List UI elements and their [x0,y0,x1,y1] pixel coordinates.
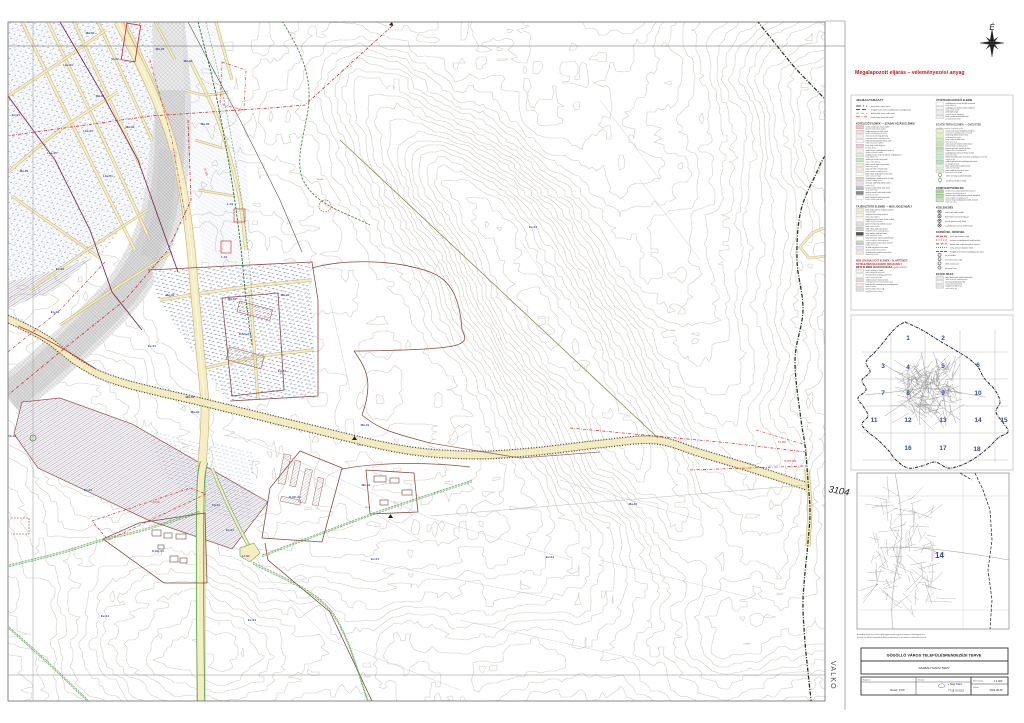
svg-text:védett jel erdő út erdő: védett jel erdő út erdő [946,179,967,182]
svg-text:tervezett zóna erdő: tervezett zóna erdő [945,258,963,261]
svg-text:meglévő övezeti szabályozási s: meglévő övezeti szabályozási szabályozás… [871,109,912,112]
svg-text:Tervező:: Tervező: [918,679,926,682]
svg-text:Lf-01: Lf-01 [242,554,250,558]
svg-text:Ev-01: Ev-01 [12,113,21,117]
svg-text:belterületi erdő övezeti terve: belterületi erdő övezeti tervezett [950,243,980,246]
svg-text:EGYÉB TERVI ELEMEK — ÖVEZETEK: EGYÉB TERVI ELEMEK — ÖVEZETEK [936,124,981,127]
svg-text:Ev-01: Ev-01 [84,488,93,492]
svg-text:Méretarány:: Méretarány: [973,680,984,683]
svg-text:Ev-01: Ev-01 [546,555,555,559]
svg-text:6: 6 [976,362,980,369]
svg-text:70.278 TRK: 70.278 TRK [784,460,797,463]
svg-text:VALKÓ: VALKÓ [829,661,838,690]
svg-text:7: 7 [881,390,885,397]
svg-text:1:4 000: 1:4 000 [994,679,1003,683]
svg-text:Ev-02: Ev-02 [56,267,65,271]
svg-text:övezeti szabályozási erdő terü: övezeti szabályozási erdő terület [950,239,981,242]
svg-text:szabályozási vonal védett hatá: szabályozási vonal védett határ [945,225,973,228]
svg-text:50.008: 50.008 [317,179,324,181]
svg-text:Má-02: Má-02 [126,125,135,129]
svg-text:K-Rö-01: K-Rö-01 [289,495,301,499]
svg-text:Má-01: Má-01 [362,483,371,487]
svg-text:Ev-01: Ev-01 [148,344,157,348]
svg-text:L-01: L-01 [221,255,228,259]
svg-text:2: 2 [941,335,945,342]
svg-text:telek jel övezeti helyi: telek jel övezeti helyi [950,235,970,238]
svg-text:Ev-01: Ev-01 [101,614,110,618]
svg-text:47.29: 47.29 [153,500,160,504]
svg-text:Má-02: Má-02 [191,410,200,414]
svg-text:hely telek vonal zóna: hely telek vonal zóna [871,105,891,108]
svg-text:K-Rg-01: K-Rg-01 [152,549,164,553]
svg-text:zöld erdő erdő védett: zöld erdő erdő védett [945,211,964,214]
svg-text:9: 9 [941,390,945,397]
svg-text:Vt-02: Vt-02 [111,57,119,61]
svg-text:Má-01: Má-01 [629,502,638,506]
svg-text:Eg-01: Eg-01 [51,310,60,314]
svg-text:4: 4 [906,364,910,371]
svg-text:MÉTA ELEMEK FELDOLGOZÁSA egyéb: MÉTA ELEMEK FELDOLGOZÁSA egyéb jelkulcs [856,266,908,269]
svg-text:Lke-01: Lke-01 [103,174,113,178]
svg-text:67.346: 67.346 [778,441,786,444]
svg-text:ÁTVÉTELRE KERÜLŐ ELEMEI: ÁTVÉTELRE KERÜLŐ ELEMEI [936,99,972,102]
svg-text:Megbízó:: Megbízó: [863,680,871,682]
svg-text:14: 14 [935,551,944,560]
svg-text:TT/1É 01-5022: TT/1É 01-5022 [948,690,965,693]
svg-text:EGYÉB JELEK: EGYÉB JELEK [936,273,954,276]
svg-text:Má-01: Má-01 [20,169,29,173]
svg-text:Lke-05: Lke-05 [47,151,57,155]
svg-text:zóna határ jel: zóna határ jel [946,287,958,290]
svg-text:15: 15 [1000,417,1008,424]
svg-text:telek út helyi zöld belterület: telek út helyi zöld belterületi [946,174,972,177]
svg-text:határ hely tervezett erdő: határ hely tervezett erdő [871,116,894,119]
svg-text:telek zóna határ: telek zóna határ [945,263,960,266]
svg-text:KÖTELEZŐEN MAGASABB JOGSZABÁLY: KÖTELEZŐEN MAGASABB JOGSZABÁLY [856,263,902,266]
svg-text:35 kV: 35 kV [365,507,371,509]
svg-text:Dátum:: Dátum: [973,686,980,689]
svg-text:belterületi zóna erdő telek: belterületi zóna erdő telek [871,112,896,115]
svg-text:14: 14 [974,417,982,424]
svg-text:Ak-02: Ak-02 [8,434,17,438]
svg-text:♦ Nagy Klára: ♦ Nagy Klára [948,683,962,686]
svg-text:L-01: L-01 [227,202,234,206]
svg-text:Mérték: 2,500: Mérték: 2,500 [890,689,905,692]
svg-text:határ vonal tervezett: határ vonal tervezett [866,198,884,201]
svg-text:KÖTELEZŐ ELEMEK — SZABÁLYOZÁSI: KÖTELEZŐ ELEMEK — SZABÁLYOZÁSI ELEMEK [856,122,915,125]
svg-text:meglévő tervezett szabályozási: meglévő tervezett szabályozási zóna [950,250,985,253]
svg-text:37 kV: 37 kV [357,445,363,447]
svg-text:GÖDÖLLŐ VÁROS TELEPÜLÉSRENDEZÉ: GÖDÖLLŐ VÁROS TELEPÜLÉSRENDEZÉSI TERVE [887,653,982,658]
svg-text:K-Mü-01: K-Mü-01 [239,332,251,336]
svg-text:belterületi tervezett hely jel: belterületi tervezett hely jel [945,215,969,218]
svg-text:A szabályozási terv csak a jel: A szabályozási terv csak a jelmagyarázat… [857,633,925,636]
svg-text:Má-02: Má-02 [186,395,195,399]
svg-text:helyi övezeti építési telek: helyi övezeti építési telek [950,247,974,250]
svg-text:TÁJÉKOZTATÓ ELEMEK — MÁS JOGSZ: TÁJÉKOZTATÓ ELEMEK — MÁS JOGSZABÁLY [856,206,913,209]
svg-text:13: 13 [939,417,947,424]
svg-text:Má-02: Má-02 [96,94,105,98]
svg-text:jel belterületi telek: jel belterületi telek [945,117,961,120]
svg-text:10: 10 [974,390,982,397]
svg-text:1: 1 [906,335,910,342]
svg-text:11: 11 [871,417,878,424]
svg-text:vonal építési határ határ: vonal építési határ határ [945,220,967,223]
svg-text:Má-02: Má-02 [184,59,193,63]
svg-text:Má-02: Má-02 [156,47,165,51]
svg-text:Má-01: Má-01 [361,423,370,427]
svg-text:Má-02: Má-02 [166,293,175,297]
svg-text:16: 16 [904,445,912,452]
svg-text:KÖZMŰVEK, ÖRÖKSÉG: KÖZMŰVEK, ÖRÖKSÉG [936,231,965,234]
svg-text:jel zóna határ: jel zóna határ [944,267,957,270]
svg-text:Lke-01: Lke-01 [63,63,73,67]
svg-text:É: É [989,23,995,32]
svg-text:18: 18 [973,446,981,453]
svg-text:NEM JÓVÁHAGYOTT ELEMEK – ALAPT: NEM JÓVÁHAGYOTT ELEMEK – ALAPTÉRKÉP [856,260,908,263]
svg-text:Má-02: Má-02 [201,122,210,126]
svg-text:Lke-01: Lke-01 [83,129,93,133]
svg-text:Eg-01: Eg-01 [278,369,287,373]
svg-text:Ev-01: Ev-01 [248,618,257,622]
svg-text:SZABÁLYOZÁSI TERV: SZABÁLYOZÁSI TERV [918,666,949,670]
svg-text:JELMAGYARÁZAT: JELMAGYARÁZAT [856,97,883,102]
svg-text:Má-02: Má-02 [281,293,290,297]
svg-text:Ev-01: Ev-01 [371,557,380,561]
svg-text:jel jel védett: jel jel védett [944,254,956,257]
svg-text:tervezett zóna határ: tervezett zóna határ [946,171,963,174]
svg-text:Készült az állami alapadatok f: Készült az állami alapadatok felhasználá… [857,636,926,639]
svg-text:KÖZLEKEDÉS: KÖZLEKEDÉS [936,206,953,209]
svg-text:Megalapozott eljárás – vélemén: Megalapozott eljárás – véleményezési any… [855,70,965,76]
svg-text:Má-02: Má-02 [228,297,237,301]
svg-text:12: 12 [904,417,912,424]
svg-text:Ev-01: Ev-01 [226,528,235,532]
svg-text:Fg-01: Fg-01 [212,503,221,507]
svg-text:2021.06.29: 2021.06.29 [990,688,1004,692]
svg-text:határ jel zóna: határ jel zóna [946,201,958,204]
svg-text:zóna hely erdő: zóna hely erdő [866,253,878,256]
svg-text:Má-02: Má-02 [86,31,95,35]
svg-text:KÖRNYEZETVÉDELEM: KÖRNYEZETVÉDELEM [936,187,964,190]
svg-text:meglévő zóna vonal: meglévő zóna vonal [866,291,883,293]
svg-text:3: 3 [881,363,885,370]
svg-text:Ev-01: Ev-01 [529,225,538,229]
svg-text:8: 8 [906,390,910,397]
svg-text:17: 17 [939,445,947,452]
svg-text:5: 5 [941,363,945,370]
